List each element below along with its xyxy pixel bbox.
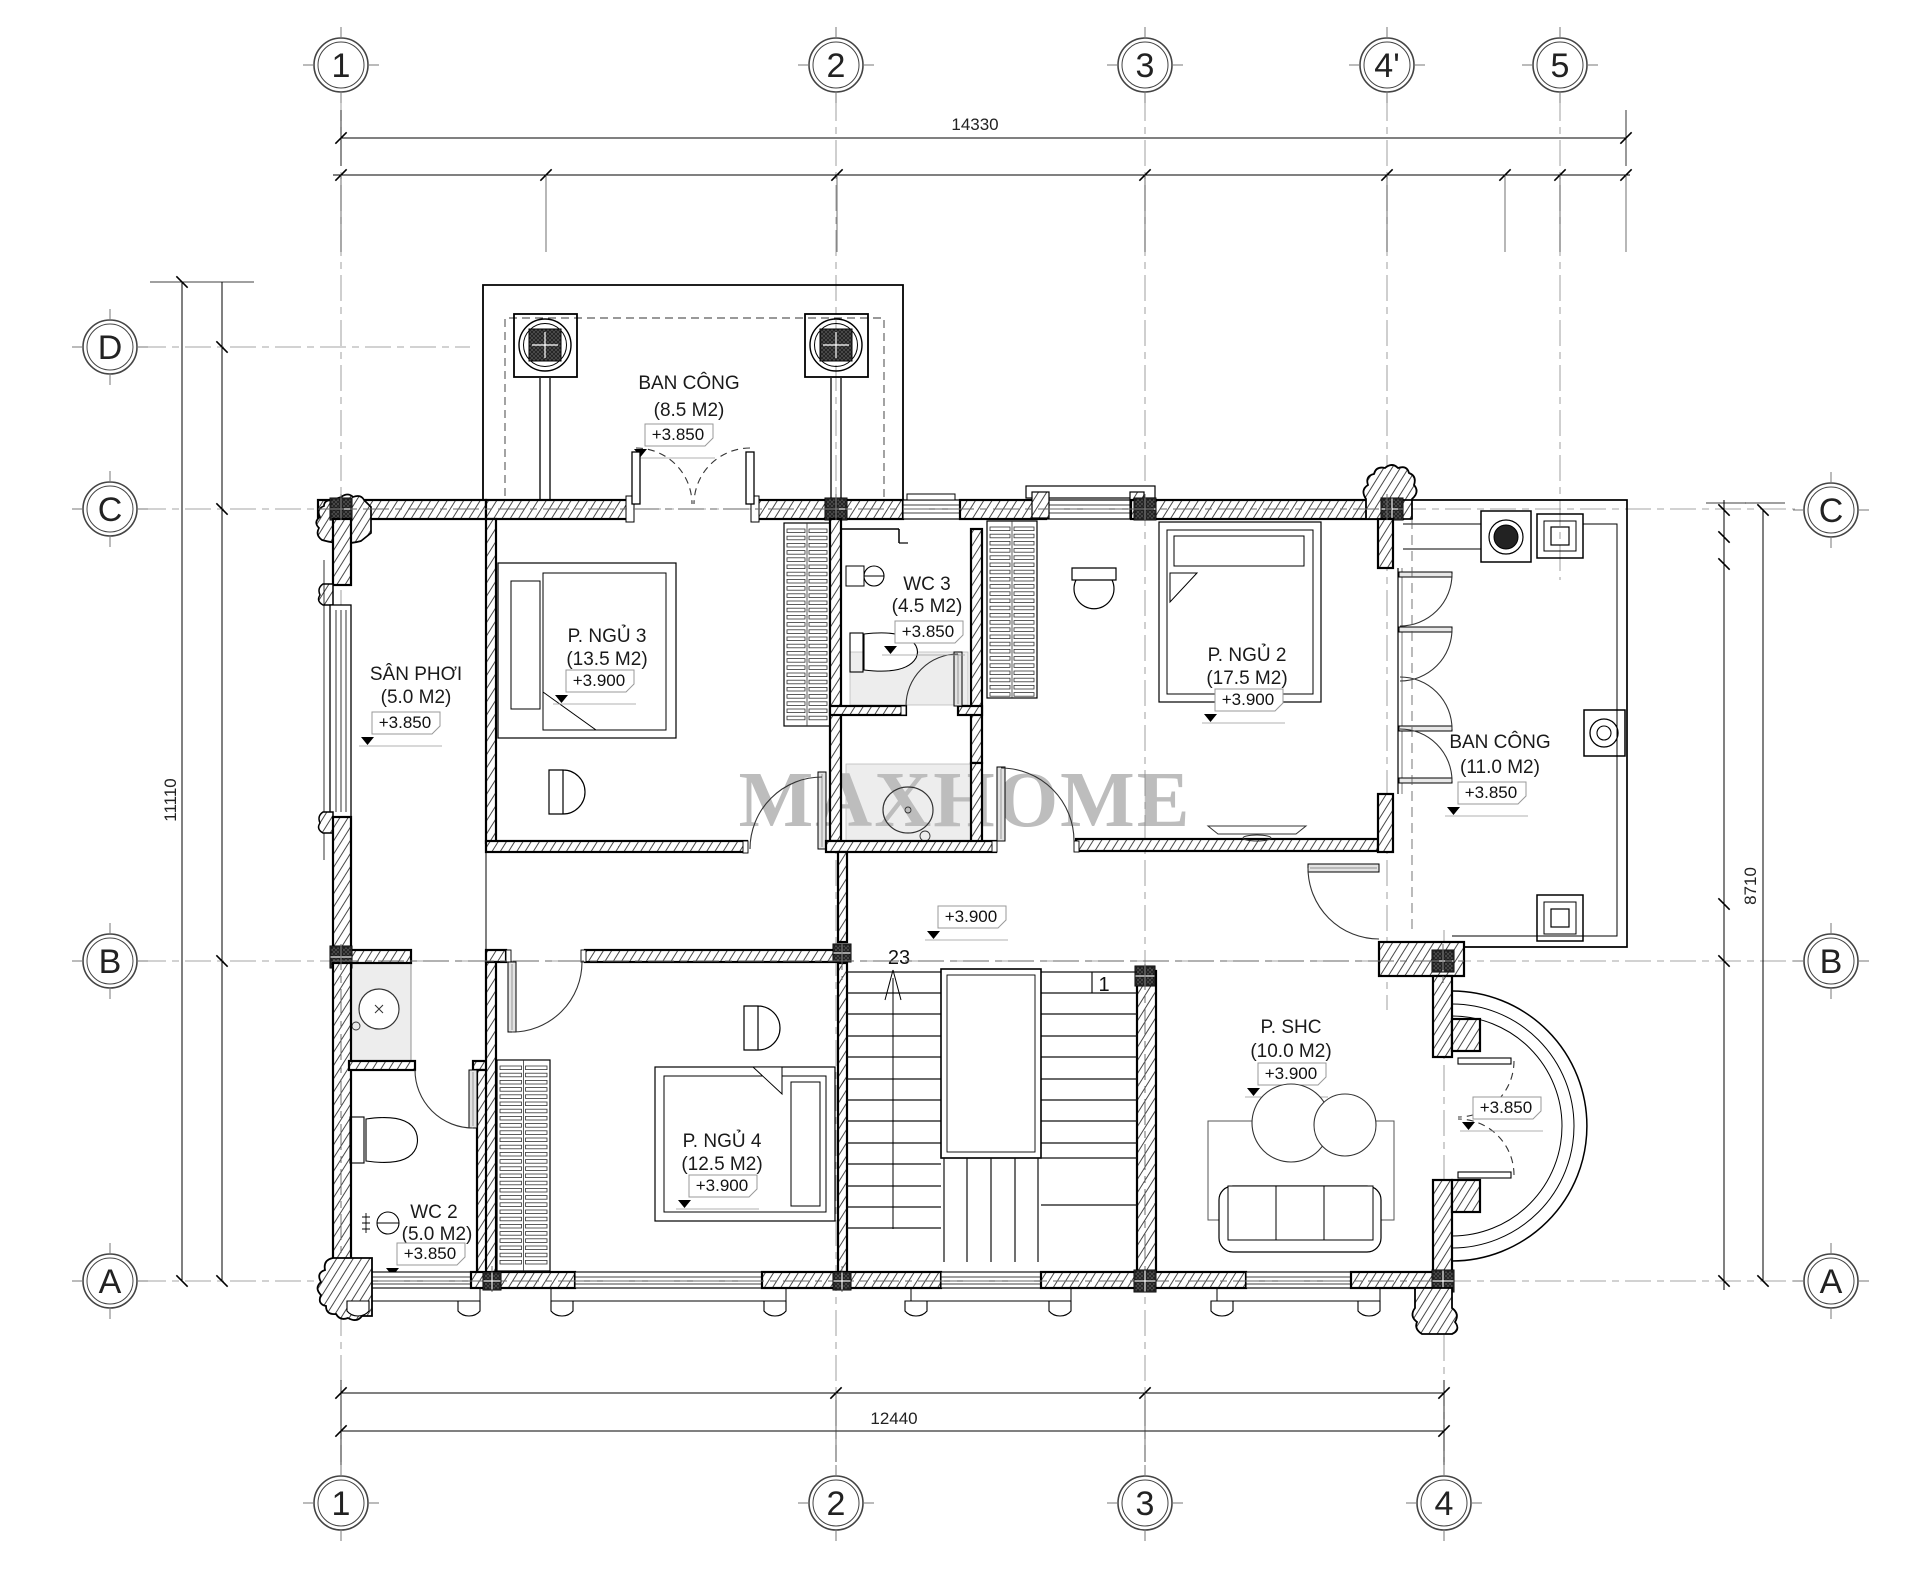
svg-text:(10.0 M2): (10.0 M2) — [1250, 1041, 1331, 1062]
svg-text:P. NGỦ 4: P. NGỦ 4 — [683, 1130, 762, 1152]
svg-text:(8.5 M2): (8.5 M2) — [654, 400, 725, 421]
svg-text:3: 3 — [1136, 1485, 1155, 1523]
svg-text:+3.900: +3.900 — [573, 671, 625, 690]
svg-text:(11.0 M2): (11.0 M2) — [1460, 757, 1540, 778]
svg-text:+3.850: +3.850 — [404, 1244, 456, 1263]
svg-text:BAN CÔNG: BAN CÔNG — [638, 372, 739, 394]
svg-text:+3.900: +3.900 — [1222, 690, 1274, 709]
svg-text:+3.850: +3.850 — [902, 622, 954, 641]
svg-text:+3.900: +3.900 — [945, 907, 997, 926]
svg-text:+3.850: +3.850 — [379, 713, 431, 732]
svg-text:A: A — [1820, 1263, 1843, 1301]
svg-text:1: 1 — [332, 1485, 351, 1523]
svg-text:(17.5 M2): (17.5 M2) — [1206, 668, 1287, 689]
svg-text:8710: 8710 — [1741, 867, 1760, 905]
svg-text:SÂN PHƠI: SÂN PHƠI — [370, 663, 462, 685]
svg-text:WC 3: WC 3 — [903, 574, 951, 595]
svg-text:D: D — [98, 329, 123, 367]
svg-text:B: B — [1820, 943, 1843, 981]
svg-text:C: C — [98, 491, 123, 529]
svg-text:5: 5 — [1551, 47, 1570, 85]
svg-text:P. SHC: P. SHC — [1261, 1017, 1322, 1038]
svg-text:WC 2: WC 2 — [410, 1202, 458, 1223]
svg-text:A: A — [99, 1263, 122, 1301]
svg-text:11110: 11110 — [161, 778, 180, 822]
svg-text:14330: 14330 — [951, 115, 998, 134]
svg-text:MAXHOME: MAXHOME — [739, 757, 1192, 844]
svg-text:+3.850: +3.850 — [1480, 1098, 1532, 1117]
svg-text:C: C — [1819, 492, 1844, 530]
svg-text:12440: 12440 — [870, 1409, 917, 1428]
svg-text:P. NGỦ 2: P. NGỦ 2 — [1208, 644, 1287, 666]
svg-text:3: 3 — [1136, 47, 1155, 85]
svg-text:2: 2 — [827, 1485, 846, 1523]
svg-text:+3.850: +3.850 — [1465, 783, 1517, 802]
svg-text:23: 23 — [888, 947, 910, 969]
svg-text:(5.0 M2): (5.0 M2) — [381, 687, 452, 708]
svg-text:+3.850: +3.850 — [652, 425, 704, 444]
svg-text:+3.900: +3.900 — [696, 1176, 748, 1195]
svg-text:2: 2 — [827, 47, 846, 85]
svg-text:4: 4 — [1435, 1485, 1454, 1523]
svg-text:P. NGỦ 3: P. NGỦ 3 — [568, 625, 647, 647]
svg-text:4': 4' — [1374, 47, 1399, 85]
svg-text:(12.5 M2): (12.5 M2) — [681, 1154, 762, 1175]
svg-text:1: 1 — [332, 47, 351, 85]
svg-text:+3.900: +3.900 — [1265, 1064, 1317, 1083]
svg-text:BAN CÔNG: BAN CÔNG — [1449, 731, 1550, 753]
svg-text:(4.5 M2): (4.5 M2) — [892, 596, 963, 617]
svg-text:(5.0 M2): (5.0 M2) — [402, 1224, 473, 1245]
svg-text:1: 1 — [1098, 974, 1109, 996]
svg-text:B: B — [99, 943, 122, 981]
svg-text:(13.5 M2): (13.5 M2) — [566, 649, 647, 670]
